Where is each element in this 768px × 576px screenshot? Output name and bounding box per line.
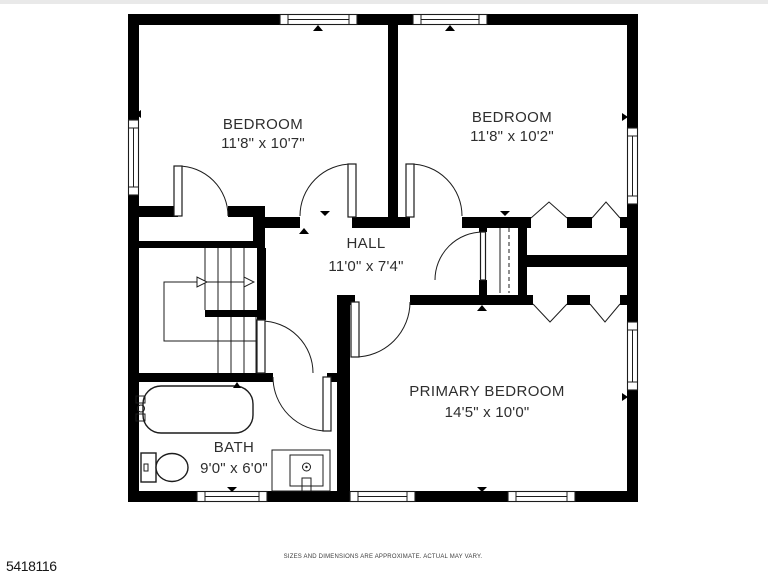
listing-id: 5418116 bbox=[6, 558, 57, 574]
window-bedroom2-right bbox=[628, 128, 638, 204]
room-name-bath: BATH bbox=[214, 439, 255, 456]
room-dims-primary-bedroom: 14'5" x 10'0" bbox=[445, 404, 530, 421]
room-dims-hall: 11'0" x 7'4" bbox=[328, 258, 403, 275]
window-bedroom1-left bbox=[129, 120, 139, 195]
disclaimer-text: SIZES AND DIMENSIONS ARE APPROXIMATE. AC… bbox=[284, 554, 483, 560]
room-name-bedroom-2: BEDROOM bbox=[472, 109, 552, 126]
window-primary-bottom-left bbox=[350, 492, 415, 502]
room-name-bedroom-1: BEDROOM bbox=[223, 116, 303, 133]
floor-plan: BEDROOM 11'8" x 10'7" BEDROOM 11'8" x 10… bbox=[0, 0, 768, 576]
window-bedroom1-top bbox=[280, 15, 357, 25]
room-name-primary-bedroom: PRIMARY BEDROOM bbox=[409, 383, 564, 400]
window-bedroom2-top bbox=[413, 15, 487, 25]
room-dims-bath: 9'0" x 6'0" bbox=[200, 460, 268, 477]
room-name-hall: HALL bbox=[346, 235, 385, 252]
window-bath-bottom bbox=[197, 492, 267, 502]
page-background bbox=[0, 0, 768, 576]
window-primary-right bbox=[628, 322, 638, 390]
room-dims-bedroom-2: 11'8" x 10'2" bbox=[470, 128, 554, 145]
page-top-edge bbox=[0, 0, 768, 4]
window-primary-bottom-right bbox=[508, 492, 575, 502]
toilet-icon bbox=[141, 453, 188, 482]
room-dims-bedroom-1: 11'8" x 10'7" bbox=[221, 135, 305, 152]
bathtub-icon bbox=[136, 386, 253, 433]
